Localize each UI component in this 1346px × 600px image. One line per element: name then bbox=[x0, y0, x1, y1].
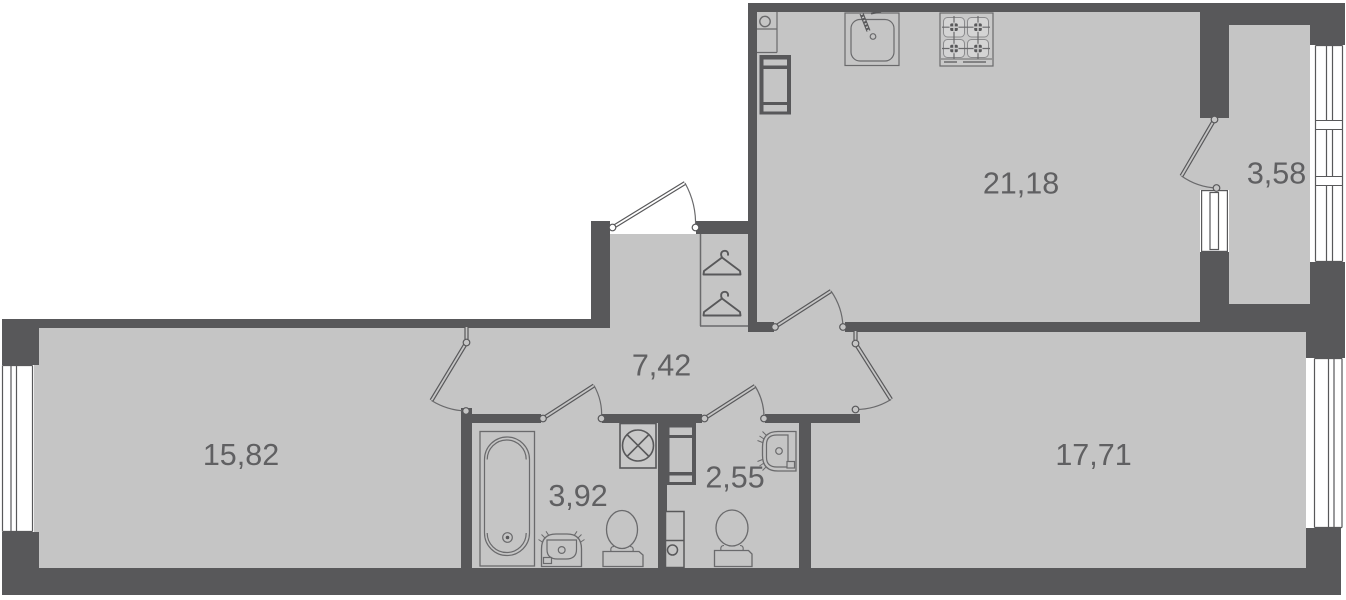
svg-text:7,42: 7,42 bbox=[632, 349, 691, 383]
svg-text:3,92: 3,92 bbox=[548, 479, 607, 513]
svg-text:15,82: 15,82 bbox=[203, 438, 279, 472]
svg-text:17,71: 17,71 bbox=[1055, 438, 1131, 472]
svg-text:21,18: 21,18 bbox=[983, 167, 1059, 201]
svg-text:3,58: 3,58 bbox=[1247, 157, 1306, 191]
svg-text:2,55: 2,55 bbox=[705, 461, 764, 495]
